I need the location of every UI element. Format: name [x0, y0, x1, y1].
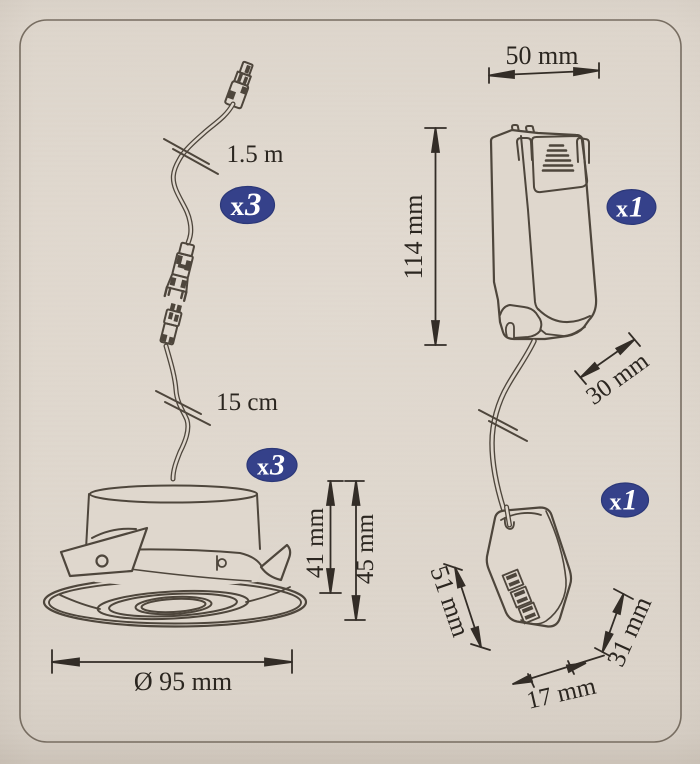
svg-text:41 mm: 41 mm — [302, 507, 329, 578]
svg-text:15 cm: 15 cm — [216, 389, 278, 416]
svg-text:114 mm: 114 mm — [399, 195, 428, 280]
svg-text:Ø 95 mm: Ø 95 mm — [134, 667, 232, 696]
svg-text:30 mm: 30 mm — [581, 347, 654, 410]
svg-text:1.5 m: 1.5 m — [227, 141, 285, 168]
svg-text:50 mm: 50 mm — [506, 41, 579, 70]
svg-text:51 mm: 51 mm — [424, 562, 475, 640]
svg-text:x3: x3 — [231, 187, 262, 223]
svg-text:45 mm: 45 mm — [352, 513, 379, 584]
svg-text:17 mm: 17 mm — [524, 673, 599, 715]
